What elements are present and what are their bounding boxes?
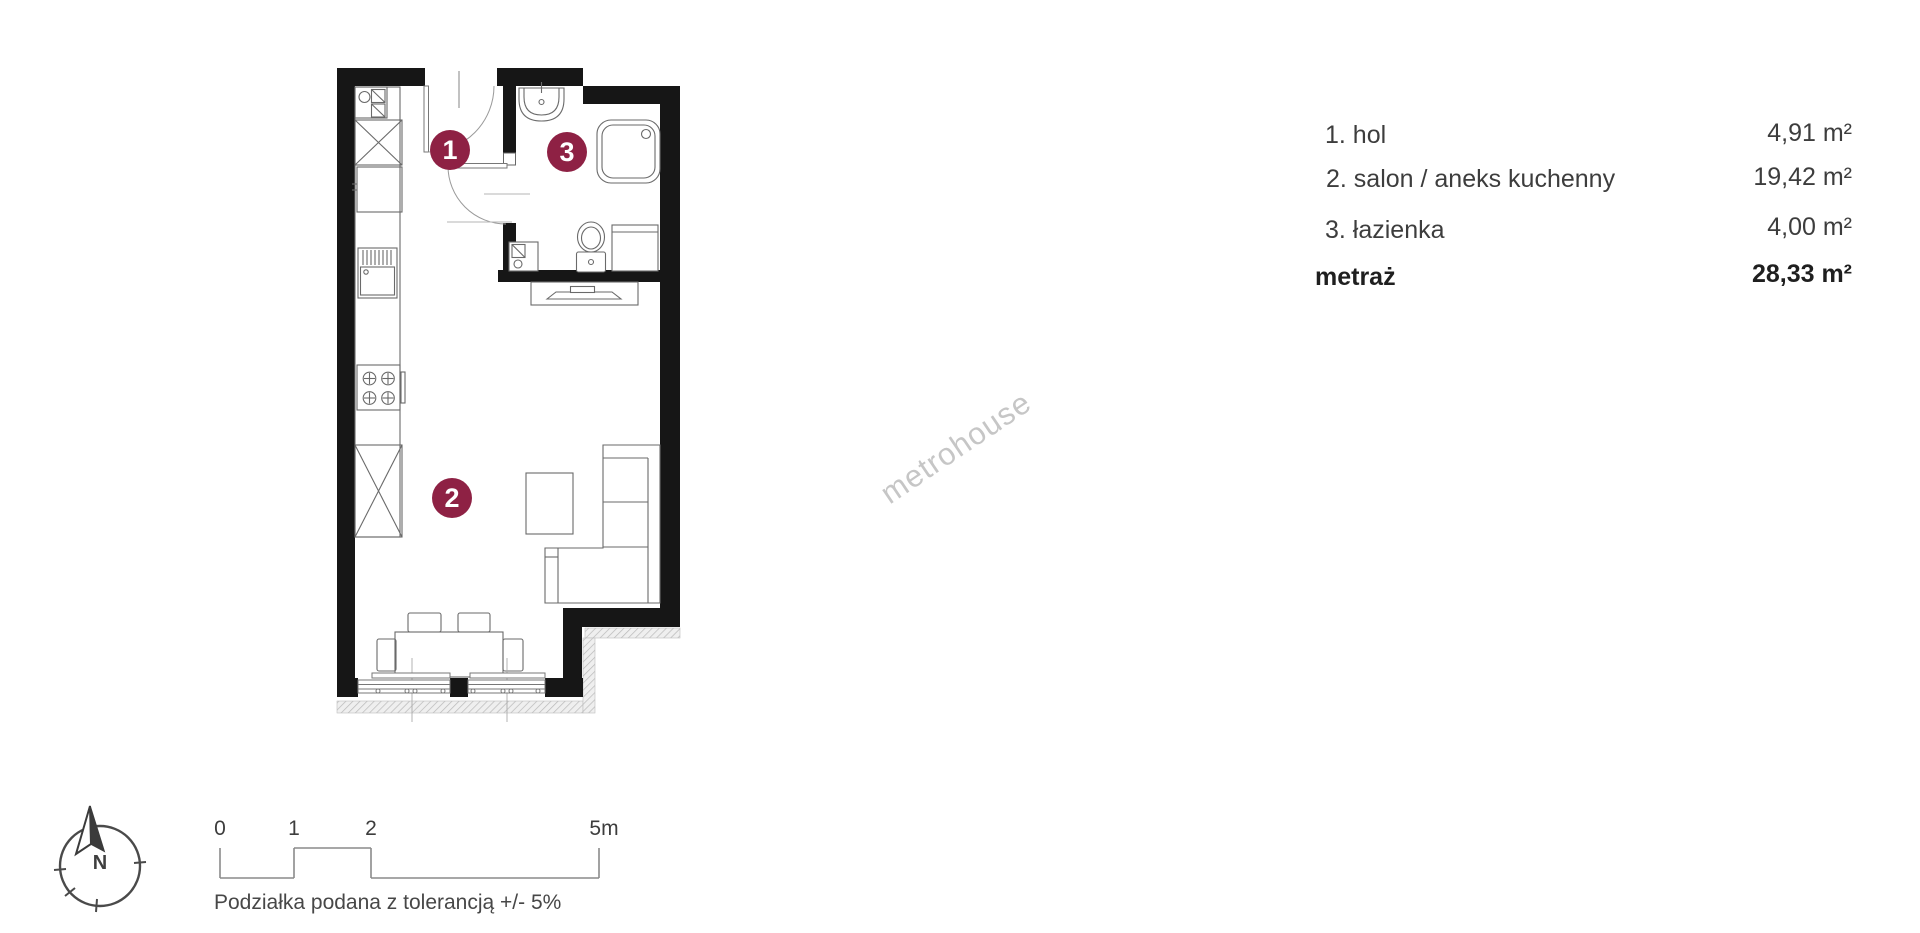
floorplan-page: 1 2 3 1. hol 4,91 m² 2. salon / aneks ku… — [0, 0, 1920, 933]
legend-row-label: 1. hol — [1325, 121, 1386, 150]
dining-table — [395, 632, 503, 677]
scale-label-0: 0 — [214, 817, 226, 841]
scale-label-5m: 5m — [589, 817, 618, 841]
scale-label-1: 1 — [288, 817, 300, 841]
room-marker-hol: 1 — [430, 130, 470, 170]
legend-total-value: 28,33 m² — [1752, 260, 1852, 289]
legend-row-label: 3. łazienka — [1325, 216, 1445, 245]
tv-sideboard — [531, 282, 638, 305]
room-marker-salon: 2 — [432, 478, 472, 518]
living-room-furniture — [377, 445, 660, 677]
legend-row-value: 4,00 m² — [1767, 213, 1852, 242]
north-arrow-right — [90, 806, 104, 851]
floor-plan-drawing — [330, 60, 690, 730]
room-marker-lazienka: 3 — [547, 132, 587, 172]
corner-sofa — [545, 445, 660, 603]
legend-row-label: 2. salon / aneks kuchenny — [1326, 165, 1615, 194]
coffee-table — [526, 473, 573, 534]
kitchen-counter — [352, 87, 405, 537]
legend-total-label: metraż — [1315, 263, 1396, 292]
bathroom-fixtures — [509, 82, 660, 272]
legend-row-value: 19,42 m² — [1753, 163, 1852, 192]
legend-row-value: 4,91 m² — [1767, 119, 1852, 148]
north-arrow-left — [76, 806, 91, 854]
scale-label-2: 2 — [365, 817, 377, 841]
scale-bar — [180, 840, 620, 890]
scale-tolerance-caption: Podziałka podana z tolerancją +/- 5% — [214, 891, 561, 915]
watermark-text: metrohouse — [871, 383, 1040, 514]
north-label: N — [88, 852, 112, 875]
